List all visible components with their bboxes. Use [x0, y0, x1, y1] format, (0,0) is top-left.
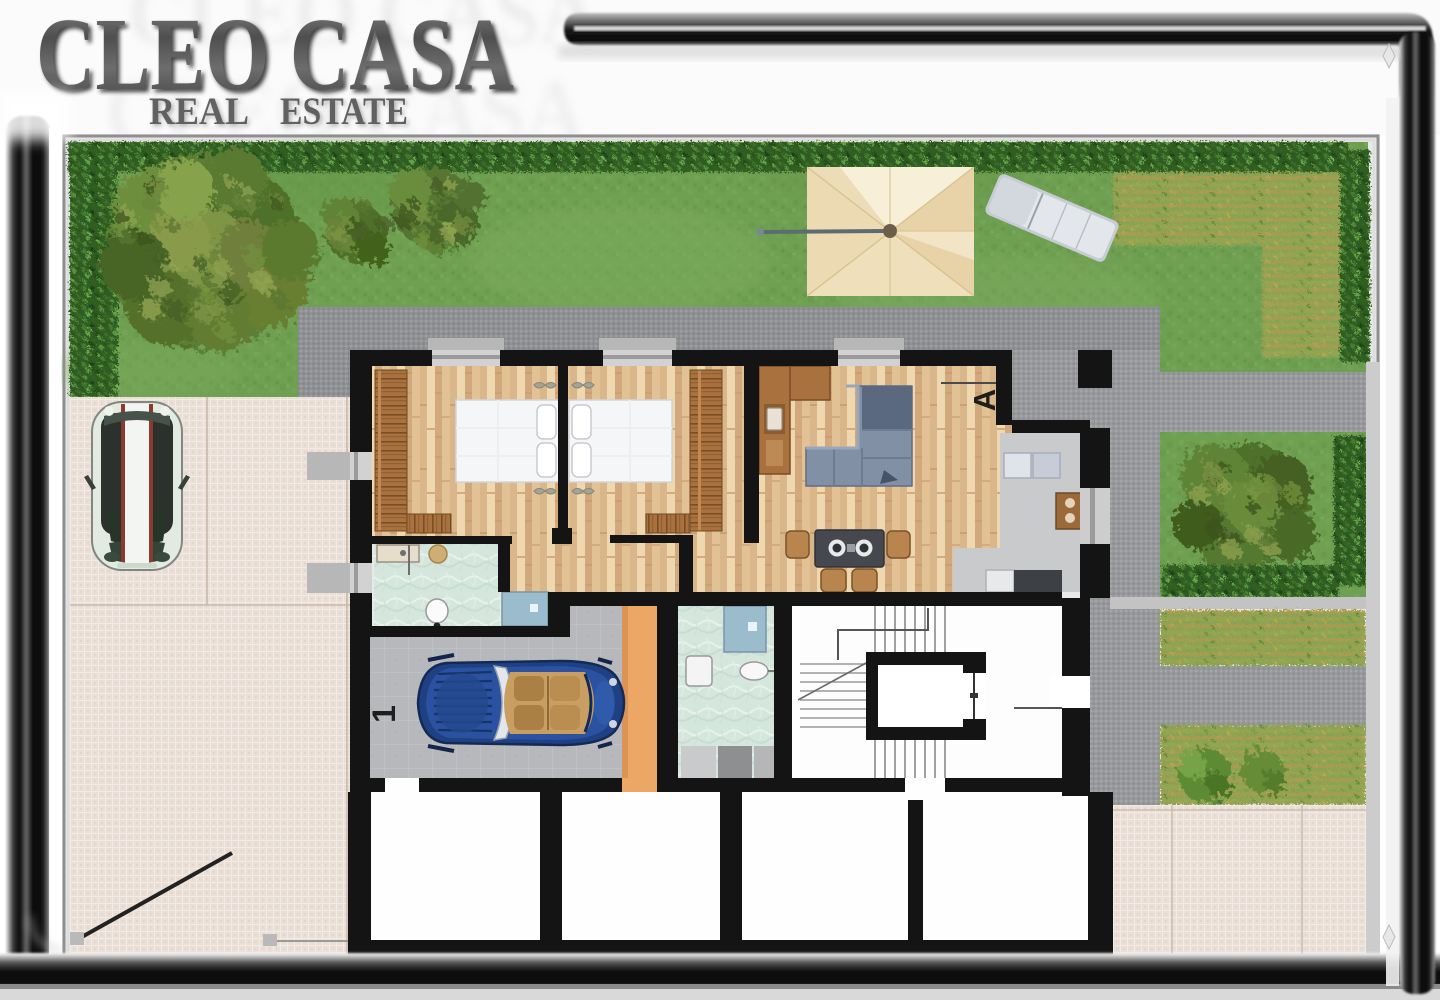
svg-text:CLEO CASA: CLEO CASA [36, 0, 514, 112]
svg-text:1: 1 [366, 705, 402, 723]
svg-text:REAL: REAL [149, 90, 249, 133]
svg-text:ESTATE: ESTATE [280, 90, 408, 133]
